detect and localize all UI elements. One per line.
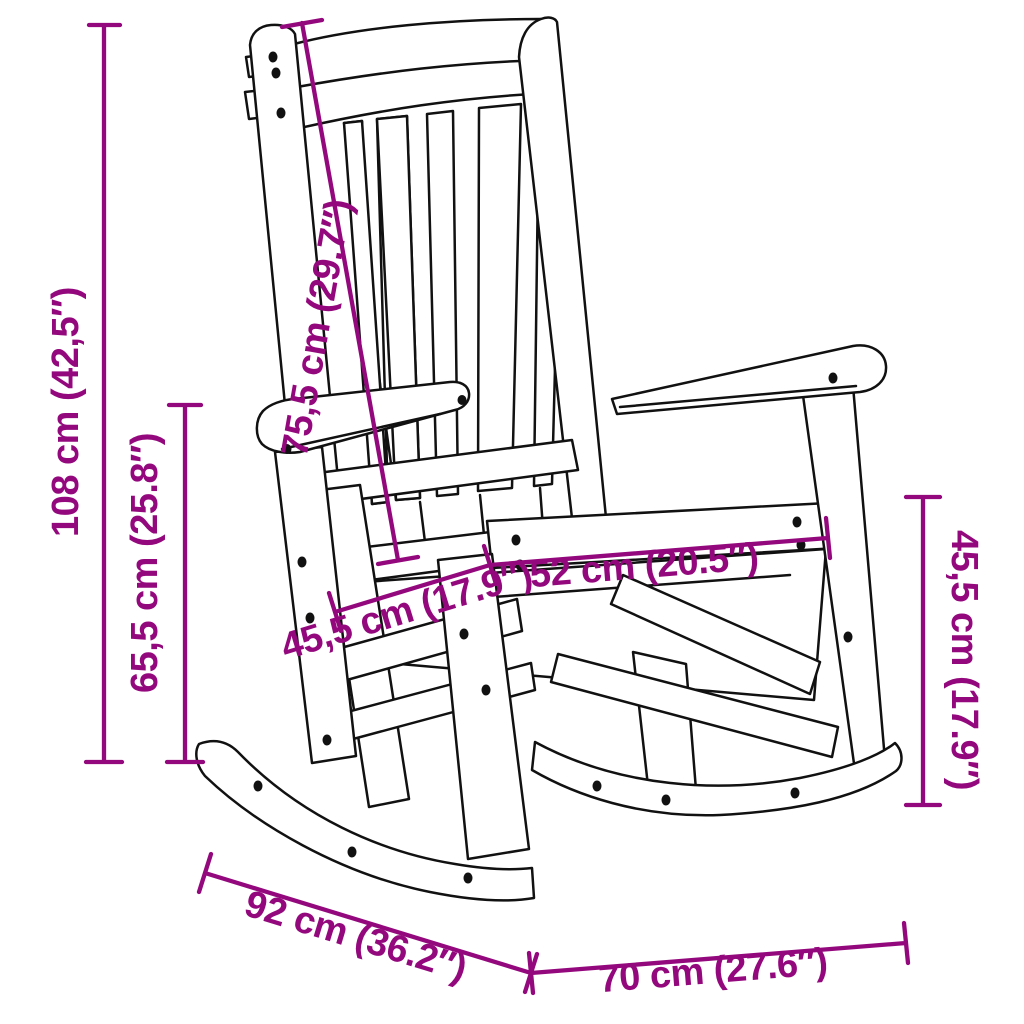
rocker-right (532, 742, 902, 815)
label-overall-width: 70 cm (27.6″) (597, 941, 829, 1001)
dimension-line-height-to-armrest (167, 405, 203, 762)
label-seat-height: 45,5 cm (17.9″) (943, 530, 985, 790)
dimension-line-seat-height (906, 497, 940, 805)
label-overall-height: 108 cm (42,5″) (45, 287, 87, 537)
dimension-line-overall-height (86, 25, 122, 762)
diagram-canvas: 108 cm (42,5″) 65,5 cm (25.8″) 75,5 cm (… (0, 0, 1024, 1024)
label-height-to-armrest: 65,5 cm (25.8″) (124, 433, 166, 693)
dimension-diagram: 108 cm (42,5″) 65,5 cm (25.8″) 75,5 cm (… (0, 0, 1024, 1024)
label-overall-depth: 92 cm (36.2″) (240, 883, 472, 990)
leg-front-right (633, 652, 696, 795)
rocking-chair-drawing (196, 18, 901, 901)
